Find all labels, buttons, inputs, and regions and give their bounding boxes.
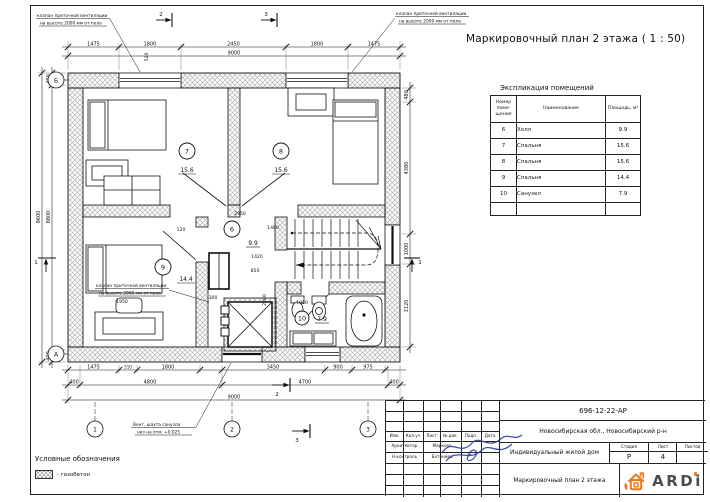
legend-item-label: - газобетон xyxy=(57,472,90,478)
schedule-title: Экспликация помещений xyxy=(500,84,641,92)
dim-label: 400 xyxy=(69,380,79,386)
sheet-title: Маркировочный план 2 этажа ( 1 : 50) xyxy=(466,33,701,45)
logo-dot xyxy=(694,472,698,476)
stage-value: Р xyxy=(610,451,648,464)
titleblock-left-grid: Изм. Кол.уч Лист № док. Подп. Дата Архит… xyxy=(386,401,499,497)
room-area: 7.9 xyxy=(317,316,327,323)
dim-label: 1950 xyxy=(116,299,128,305)
room-number: 7 xyxy=(185,148,189,156)
col-header-area: Площадь, м² xyxy=(606,96,641,123)
dim-label: 510 xyxy=(124,365,132,370)
axis-label: 2 xyxy=(230,426,234,433)
section-label: 2 xyxy=(159,12,163,18)
room-schedule: Экспликация помещений Номер поме- щения … xyxy=(490,84,641,216)
legend-title: Условные обозначения xyxy=(35,455,120,463)
dim-label: 1800 xyxy=(144,42,157,48)
ardi-logo: ARDi xyxy=(620,464,706,497)
tb-col-izm: Изм. xyxy=(386,431,403,441)
dim-label: 1420 xyxy=(251,254,263,260)
dim-label: 8800 xyxy=(46,211,52,224)
dim-label: 975 xyxy=(363,365,373,371)
schedule-table: Номер поме- щения Наименование Площадь, … xyxy=(490,95,641,216)
dim-label: 900 xyxy=(333,365,343,371)
table-row: 9 Спальня 14.4 xyxy=(491,171,641,187)
dim-label: 1480 xyxy=(267,225,279,231)
dim-label: 4380 xyxy=(404,162,410,175)
section-label: 3 xyxy=(295,438,299,444)
sheets-value xyxy=(676,451,708,464)
tb-col-podp: Подп. xyxy=(461,431,481,441)
annotation-text: на высоте 2000 мм от пола xyxy=(399,19,461,25)
dim-label: 1475 xyxy=(87,42,100,48)
room-number: 9 xyxy=(161,264,165,272)
dim-label: 4800 xyxy=(144,380,157,386)
table-row-empty xyxy=(491,203,641,216)
section-label: 1 xyxy=(34,260,38,266)
table-row: 8 Спальня 15.6 xyxy=(491,155,641,171)
room-number: 10 xyxy=(298,315,306,323)
room-area: 9.9 xyxy=(248,240,258,247)
annotation-text: клапан приточной вентиляции xyxy=(37,12,108,19)
doc-number: 696-12-22-АР xyxy=(499,401,706,421)
dim-label: 3450 xyxy=(267,365,280,371)
role-ncontrol: Н.контроль xyxy=(386,452,423,463)
room-area: 14.4 xyxy=(179,276,193,283)
dim-label: 1950 xyxy=(296,300,308,306)
dim-label: 1475 xyxy=(87,365,100,371)
tb-col-ndok: № док. xyxy=(440,431,461,441)
annotation-text: клапан приточной вентиляции xyxy=(396,10,467,17)
dim-label: 1000 xyxy=(404,243,410,256)
annotation-text: на высоте 2000 мм от пола xyxy=(40,21,102,27)
sheet-name: Маркировочный план 2 этажа xyxy=(499,464,619,497)
axis-label: 3 xyxy=(366,426,370,433)
dim-label: 9000 xyxy=(228,395,241,401)
sheet-number: 4 xyxy=(648,451,677,464)
role-architect: Архитектор xyxy=(386,441,423,452)
col-header-number: Номер поме- щения xyxy=(491,96,517,123)
logo-cell: ARDi xyxy=(619,464,706,497)
table-row: 6 Холл 9.9 xyxy=(491,123,641,139)
dim-label: 4700 xyxy=(299,380,312,386)
architect-name: Маркова xyxy=(423,441,461,452)
room-number: 8 xyxy=(279,148,283,156)
dim-label: 520 xyxy=(144,53,150,62)
annotation-text: Вент. шахта санузла xyxy=(133,422,181,428)
dim-label: 1800 xyxy=(311,42,324,48)
annotation-text: на высоте 2000 мм от пола xyxy=(99,291,161,297)
ncontrol-name: Батенева xyxy=(423,452,461,463)
room-area: 15.6 xyxy=(180,167,194,174)
annotation-text: низ на отм. +0,025 xyxy=(137,430,180,436)
table-row: 10 Санузел 7.9 xyxy=(491,187,641,203)
col-header-name: Наименование xyxy=(517,96,606,123)
dim-label: 9000 xyxy=(228,51,241,57)
title-block: Изм. Кол.уч Лист № док. Подп. Дата Архит… xyxy=(385,400,705,496)
project-location: Новосибирская обл., Новосибирский р-н xyxy=(499,421,706,443)
annotation-text: клапан приточной вентиляции xyxy=(96,282,167,289)
dim-label: 850 xyxy=(251,268,260,274)
dim-label: 3120 xyxy=(404,300,410,313)
dim-label: 1800 xyxy=(162,365,175,371)
tb-col-koluch: Кол.уч xyxy=(403,431,423,441)
section-label: 1 xyxy=(418,260,422,266)
room-area: 15.6 xyxy=(274,167,288,174)
tb-col-data: Дата xyxy=(481,431,499,441)
dim-label: 2780 xyxy=(262,294,268,306)
dim-label: 2950 xyxy=(234,211,246,217)
dim-label: 480 xyxy=(404,90,410,100)
house-icon xyxy=(623,469,647,493)
aerated-concrete-swatch xyxy=(35,470,53,479)
dim-label: 2450 xyxy=(227,42,240,48)
staircase xyxy=(287,219,381,279)
section-label: 2 xyxy=(275,392,279,398)
section-label: 3 xyxy=(264,12,268,18)
tb-col-list: Лист xyxy=(423,431,440,441)
axis-label: Б xyxy=(54,77,58,84)
room-number: 6 xyxy=(230,226,234,234)
stage-grid: Стадия Лист Листов Р 4 xyxy=(609,443,706,464)
legend: Условные обозначения - газобетон xyxy=(35,455,120,479)
table-row: 7 Спальня 15.6 xyxy=(491,139,641,155)
project-object: Индивидуальный жилой дом xyxy=(499,443,609,464)
dim-label: 400 xyxy=(389,380,399,386)
dim-label: 300 xyxy=(209,295,218,301)
dim-label: 9600 xyxy=(36,211,42,224)
axis-label: 1 xyxy=(93,426,97,433)
dim-label: 120 xyxy=(177,227,186,233)
